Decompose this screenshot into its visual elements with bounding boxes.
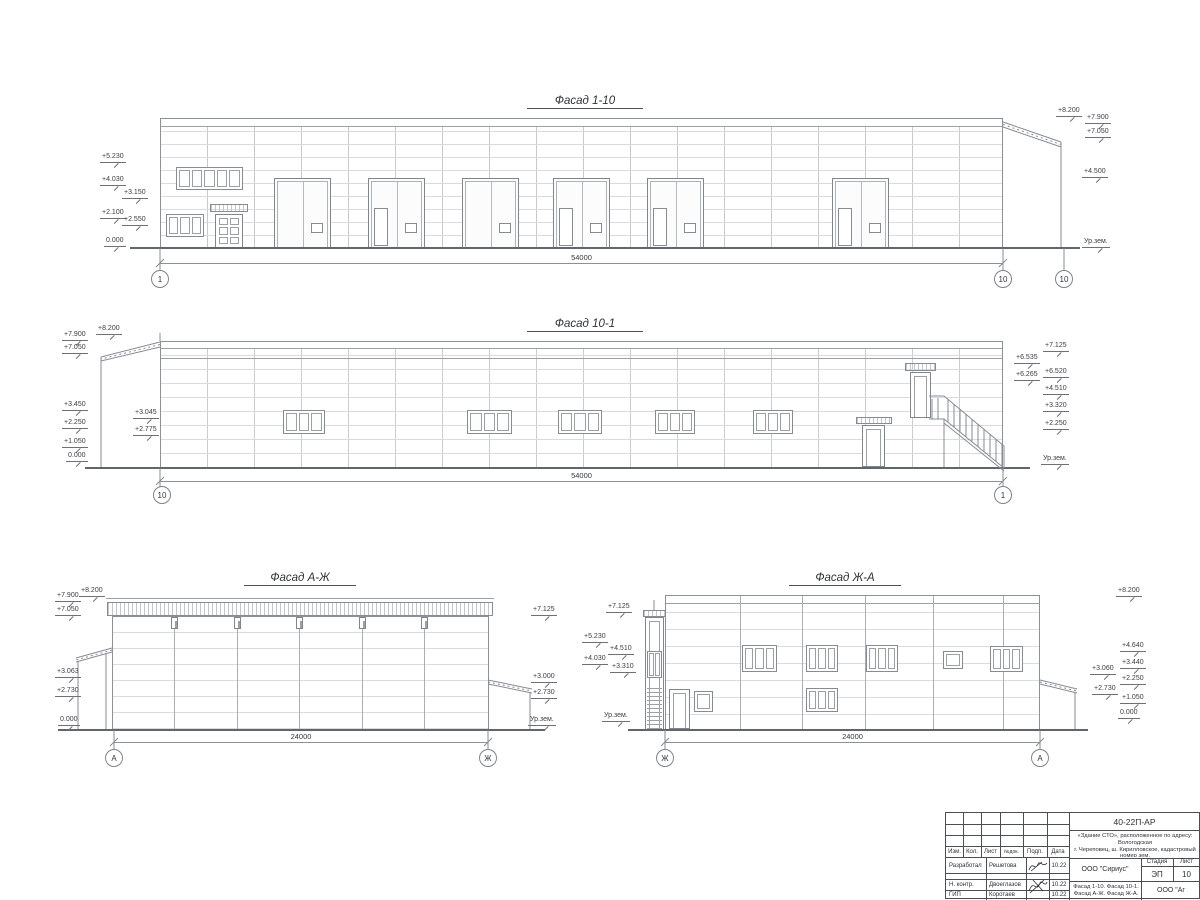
elevation-marker: +7.125	[1043, 342, 1069, 352]
dimension-line: 54000	[160, 472, 1003, 482]
tb-col-izm: Изм.	[946, 846, 963, 858]
column-line	[424, 617, 425, 729]
facade-10-1-title: Фасад 10-1	[527, 318, 643, 332]
elevation-marker: +4.640	[1120, 642, 1146, 652]
door	[862, 425, 885, 467]
elevation-marker: +7.050	[1085, 128, 1111, 138]
elevation-marker: 0.000	[1118, 709, 1140, 719]
elevation-marker: +2.730	[531, 689, 557, 699]
axis-bubble: А	[105, 749, 123, 767]
column-line	[174, 617, 175, 729]
elevation-marker: +3.150	[122, 189, 148, 199]
elevation-marker: +3.045	[133, 409, 159, 419]
dimension-value: 54000	[568, 253, 595, 262]
tb-name-1: Решетова	[987, 859, 1025, 872]
elevation-marker: +7.050	[55, 606, 81, 616]
stair-tower-roof	[643, 610, 666, 617]
tb-doc-number: 40-22П-АР	[1069, 813, 1200, 831]
tb-sheet-value: 10	[1173, 867, 1200, 881]
elevation-marker: 0.000	[66, 452, 88, 462]
tb-col-dok: №док.	[1000, 846, 1023, 858]
gate	[368, 178, 425, 248]
tb-content-line2: Фасад А-Ж. Фасад Ж-А.	[1071, 891, 1141, 898]
axis-bubble: 10	[153, 486, 171, 504]
gate	[647, 178, 704, 248]
tb-project-line2: г. Череповец, ш. Кирилловское, кадастров…	[1071, 847, 1199, 857]
elevation-marker: +7.900	[55, 592, 81, 602]
column-line	[802, 596, 803, 729]
window	[806, 688, 838, 712]
column-line	[237, 617, 238, 729]
ribbon-window	[176, 167, 243, 190]
window	[753, 410, 793, 434]
elevation-marker: +3.450	[62, 401, 88, 411]
stair-window	[647, 651, 662, 678]
stair-treads	[647, 688, 662, 729]
upper-door	[910, 372, 931, 418]
window	[694, 691, 713, 712]
dimension-value: 54000	[568, 471, 595, 480]
elevation-marker: +7.900	[1085, 114, 1111, 124]
elevation-marker: +4.510	[1043, 385, 1069, 395]
facade-a-zh-title: Фасад А-Ж	[244, 572, 356, 586]
dimension-value: 24000	[839, 732, 866, 741]
tb-project-line1: «Здание СТО», расположенное по адресу: В…	[1071, 833, 1199, 847]
upper-door-canopy	[905, 363, 936, 371]
elevation-marker: +3.063	[55, 668, 81, 678]
elevation-marker: +2.775	[133, 426, 159, 436]
elevation-marker: +8.200	[1116, 587, 1142, 597]
axis-bubble: Ж	[479, 749, 497, 767]
window	[990, 646, 1023, 672]
elevation-marker: +5.230	[100, 153, 126, 163]
facade-1-10-title: Фасад 1-10	[527, 95, 643, 109]
column-cap	[359, 617, 366, 629]
elevation-marker: +4.500	[1082, 168, 1108, 178]
elevation-marker: +2.730	[55, 687, 81, 697]
dimension-line: 24000	[114, 733, 488, 743]
elevation-marker: +2.250	[62, 419, 88, 429]
drawing-sheet: Фасад 1-10 54000 Фасад 10-1 54000 Фасад …	[0, 0, 1200, 900]
parapet-band	[666, 596, 1039, 604]
elevation-marker: +5.230	[582, 633, 608, 643]
elevation-marker: +3.000	[531, 673, 557, 683]
tb-project: «Здание СТО», расположенное по адресу: В…	[1071, 833, 1199, 857]
door-canopy	[856, 417, 892, 424]
window	[283, 410, 325, 434]
elevation-marker: +4.030	[100, 176, 126, 186]
gate	[553, 178, 610, 248]
elevation-marker: Ур.зем.	[602, 712, 630, 722]
tb-role-2: Н. контр.	[947, 880, 986, 890]
parapet-band	[161, 342, 1002, 349]
column-cap	[234, 617, 241, 629]
elevation-marker: +6.520	[1043, 368, 1069, 378]
elevation-marker: 0.000	[104, 237, 126, 247]
window	[558, 410, 602, 434]
gate	[274, 178, 331, 248]
entrance-canopy	[210, 204, 248, 212]
elevation-marker: +6.535	[1014, 354, 1040, 364]
title-block: Изм. Кол. Лист №док. Подп. Дата Разработ…	[945, 812, 1200, 899]
axis-bubble: 10	[1055, 270, 1073, 288]
facade-zh-a-title: Фасад Ж-А	[789, 572, 901, 586]
tb-name-2: Двоеглазов	[987, 880, 1025, 890]
tb-stage-value: ЭП	[1141, 867, 1173, 881]
elevation-marker: Ур.зем.	[1082, 238, 1110, 248]
elevation-marker: +2.250	[1043, 420, 1069, 430]
roof-corrugation	[107, 602, 493, 616]
elevation-marker: +4.030	[582, 655, 608, 665]
window	[655, 410, 695, 434]
elevation-marker: +7.900	[62, 331, 88, 341]
axis-bubble: А	[1031, 749, 1049, 767]
tb-company2: ООО "Аг	[1142, 881, 1200, 900]
column-cap	[296, 617, 303, 629]
facade-a-zh-wall	[112, 616, 489, 730]
ground-line	[130, 247, 1080, 249]
tb-company: ООО "Сириус"	[1069, 858, 1141, 881]
tb-col-data: Дата	[1047, 846, 1069, 858]
elevation-marker: +2.550	[122, 216, 148, 226]
dimension-value: 24000	[288, 732, 315, 741]
elevation-marker: +6.265	[1014, 371, 1040, 381]
window	[943, 651, 963, 669]
elevation-marker: +3.440	[1120, 659, 1146, 669]
window	[467, 410, 512, 434]
tb-stage-label: Стадия	[1141, 858, 1173, 867]
parapet-line	[161, 358, 1002, 359]
elevation-marker: 0.000	[58, 716, 80, 726]
elevation-marker: +1.050	[1120, 694, 1146, 704]
window	[806, 645, 838, 672]
entrance-door	[215, 214, 243, 248]
tb-content-line1: Фасад 1-10. Фасад 10-1.	[1071, 884, 1141, 891]
elevation-marker: Ур.зем.	[528, 716, 556, 726]
elevation-marker: +8.200	[79, 587, 105, 597]
column-line	[362, 617, 363, 729]
axis-bubble: Ж	[656, 749, 674, 767]
gate	[462, 178, 519, 248]
column-cap	[171, 617, 178, 629]
tb-date-3: 10.22	[1049, 890, 1069, 900]
window	[742, 645, 777, 672]
tb-date-1: 10.22	[1049, 859, 1069, 872]
signature-marks	[1026, 858, 1049, 900]
column-cap	[421, 617, 428, 629]
elevation-marker: +8.200	[96, 325, 122, 335]
ground-line	[628, 729, 1088, 731]
elevation-marker: +7.050	[62, 344, 88, 354]
window	[866, 645, 898, 672]
parapet-band	[161, 119, 1002, 127]
elevation-marker: +2.730	[1092, 685, 1118, 695]
tb-content: Фасад 1-10. Фасад 10-1. Фасад А-Ж. Фасад…	[1071, 884, 1141, 900]
elevation-marker: +7.125	[531, 606, 557, 616]
tb-col-list: Лист	[981, 846, 1000, 858]
tb-col-kol: Кол.	[963, 846, 981, 858]
elevation-marker: +3.310	[610, 663, 636, 673]
axis-bubble: 1	[994, 486, 1012, 504]
ground-line	[58, 729, 545, 731]
tb-date-2: 10.22	[1049, 880, 1069, 890]
elevation-marker: Ур.зем.	[1041, 455, 1069, 465]
axis-bubble: 10	[994, 270, 1012, 288]
tb-col-podp: Подп.	[1023, 846, 1047, 858]
dimension-line: 54000	[160, 254, 1003, 264]
door	[669, 689, 690, 729]
elevation-marker: +7.125	[606, 603, 632, 613]
axis-bubble: 1	[151, 270, 169, 288]
roof-edge	[106, 598, 494, 599]
elevation-marker: +3.320	[1043, 402, 1069, 412]
dimension-line: 24000	[665, 733, 1040, 743]
tb-role-3: ГИП	[947, 890, 986, 900]
column-line	[933, 596, 934, 729]
tb-role-1: Разработал	[947, 859, 986, 872]
column-line	[740, 596, 741, 729]
window	[166, 214, 204, 237]
elevation-marker: +4.510	[608, 645, 634, 655]
elevation-marker: +2.250	[1120, 675, 1146, 685]
elevation-marker: +1.050	[62, 438, 88, 448]
gate	[832, 178, 889, 248]
elevation-marker: +3.060	[1090, 665, 1116, 675]
tb-name-3: Коротаев	[987, 890, 1025, 900]
ground-line	[85, 467, 1030, 469]
elevation-marker: +8.200	[1056, 107, 1082, 117]
facade-zh-a-wall	[665, 595, 1040, 730]
tb-sheet-label: Лист	[1173, 858, 1200, 867]
column-line	[299, 617, 300, 729]
